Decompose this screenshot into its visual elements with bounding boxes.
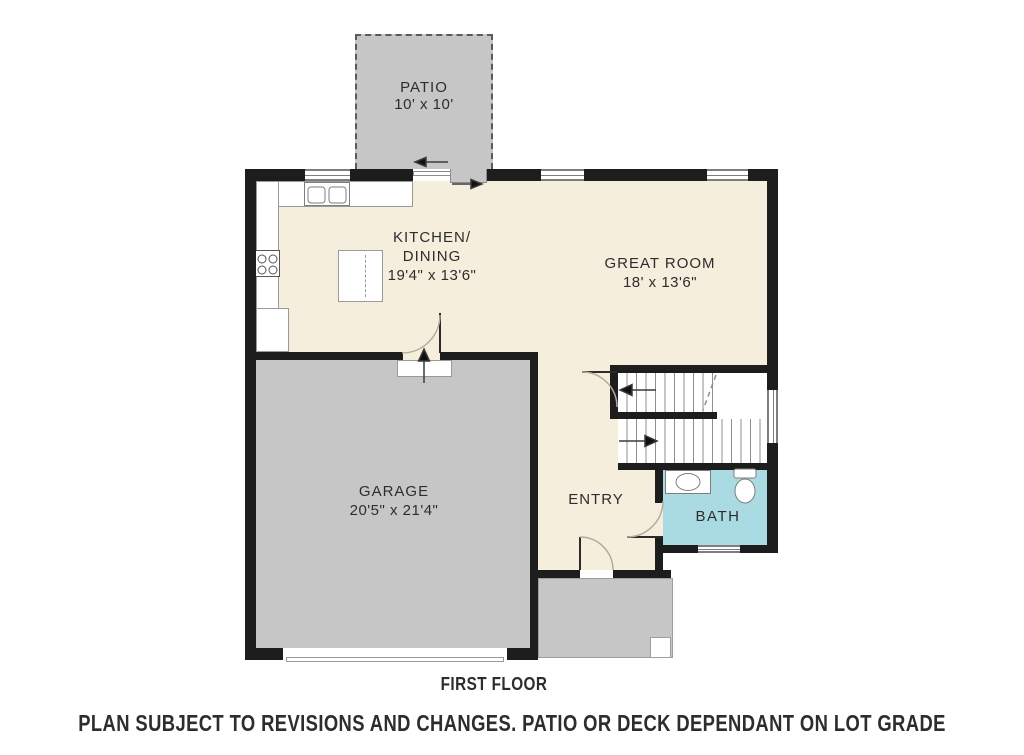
garage-dims: 20'5" x 21'4"	[350, 501, 439, 520]
wall-garage-bottom-1	[245, 648, 283, 660]
room-label-entry: ENTRY	[568, 491, 624, 508]
wall-garage-top-2	[440, 352, 538, 360]
wall-stair-top	[610, 365, 778, 373]
disclaimer-text: PLAN SUBJECT TO REVISIONS AND CHANGES. P…	[78, 710, 946, 737]
bath-name: BATH	[696, 508, 741, 525]
wall-top-3	[487, 169, 541, 181]
kitchen-dims: 19'4" x 13'6"	[388, 266, 477, 285]
wall-stair-mid	[610, 412, 717, 419]
patio-slider-panel-moving	[450, 169, 487, 183]
floor-plan-canvas: PATIO 10' x 10' KITCHEN/ DINING 19'4" x …	[0, 0, 1024, 755]
window-kitchen	[305, 169, 350, 181]
room-label-bath: BATH	[696, 508, 741, 525]
room-label-patio: PATIO 10' x 10'	[394, 79, 453, 113]
floor-title: FIRST FLOOR	[441, 674, 548, 695]
patio-name: PATIO	[394, 79, 453, 96]
cooktop	[254, 250, 280, 277]
kitchen-name-line1: KITCHEN/	[388, 228, 477, 247]
wall-bath-bottom-2	[740, 545, 778, 553]
wall-entry-bottom-2	[613, 570, 671, 578]
patio-dims: 10' x 10'	[394, 96, 453, 113]
window-stair-landing	[767, 390, 778, 443]
wall-bath-left-upper	[655, 468, 663, 503]
garage-door	[286, 657, 504, 662]
wall-stair-left-stub	[610, 365, 618, 418]
entry-name: ENTRY	[568, 491, 624, 508]
kitchen-name-line2: DINING	[388, 247, 477, 266]
great-room-dims: 18' x 13'6"	[604, 273, 715, 292]
garage-name: GARAGE	[350, 482, 439, 501]
room-label-kitchen: KITCHEN/ DINING 19'4" x 13'6"	[388, 228, 477, 285]
patio-slider-panel-fixed	[413, 171, 452, 176]
kitchen-island	[338, 250, 383, 302]
kitchen-sink	[304, 182, 350, 206]
window-great-room-1	[541, 169, 584, 181]
wall-right-upper	[767, 169, 778, 390]
wall-left	[245, 169, 256, 660]
stairs-upper-flight	[618, 373, 717, 412]
garage-entry-step	[397, 360, 452, 377]
window-bath	[698, 545, 740, 553]
porch-post	[650, 637, 671, 658]
bath-vanity	[665, 470, 711, 494]
wall-garage-bottom-2	[507, 648, 538, 660]
wall-garage-right	[530, 352, 538, 660]
wall-top-2	[350, 169, 413, 181]
window-great-room-2	[707, 169, 748, 181]
room-label-garage: GARAGE 20'5" x 21'4"	[350, 482, 439, 520]
room-label-great-room: GREAT ROOM 18' x 13'6"	[604, 254, 715, 292]
kitchen-counter-left-wide	[256, 308, 289, 352]
wall-right-lower	[767, 443, 778, 553]
stairs-lower-flight	[618, 419, 768, 463]
wall-stair-bottom	[618, 463, 778, 470]
wall-top-4	[584, 169, 707, 181]
great-room-name: GREAT ROOM	[604, 254, 715, 273]
wall-garage-top-1	[245, 352, 403, 360]
kitchen-island-divider	[365, 255, 366, 297]
